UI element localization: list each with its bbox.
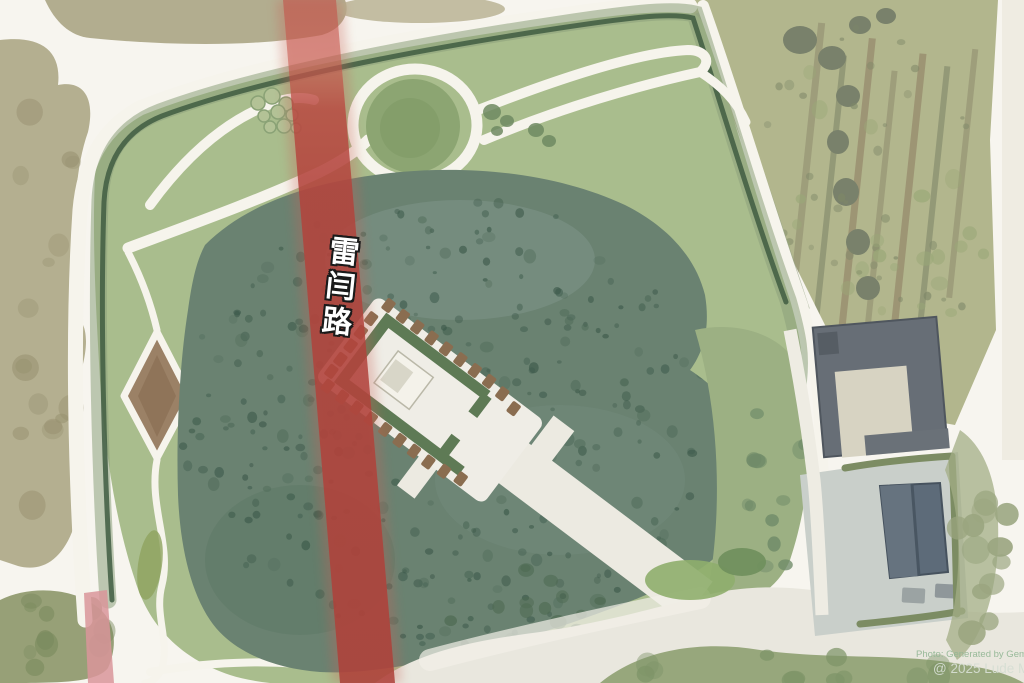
- watermark-line1: Photo: Generated by Gemi: [916, 650, 1024, 661]
- map-painting: [0, 0, 1024, 683]
- gabled-building: [880, 483, 948, 578]
- right-edge-wash: [1002, 0, 1024, 460]
- watermark-line2: @ 2025 Lude Med: [916, 661, 1024, 677]
- watermark: Photo: Generated by Gemi @ 2025 Lude Med: [916, 650, 1024, 676]
- courtyard-building: [813, 317, 950, 459]
- watercolor-park-map: 雷闫路 Photo: Generated by Gemi @ 2025 Lude…: [0, 0, 1024, 683]
- circular-mound: [353, 69, 477, 181]
- road-name-label: 雷闫路: [293, 232, 357, 355]
